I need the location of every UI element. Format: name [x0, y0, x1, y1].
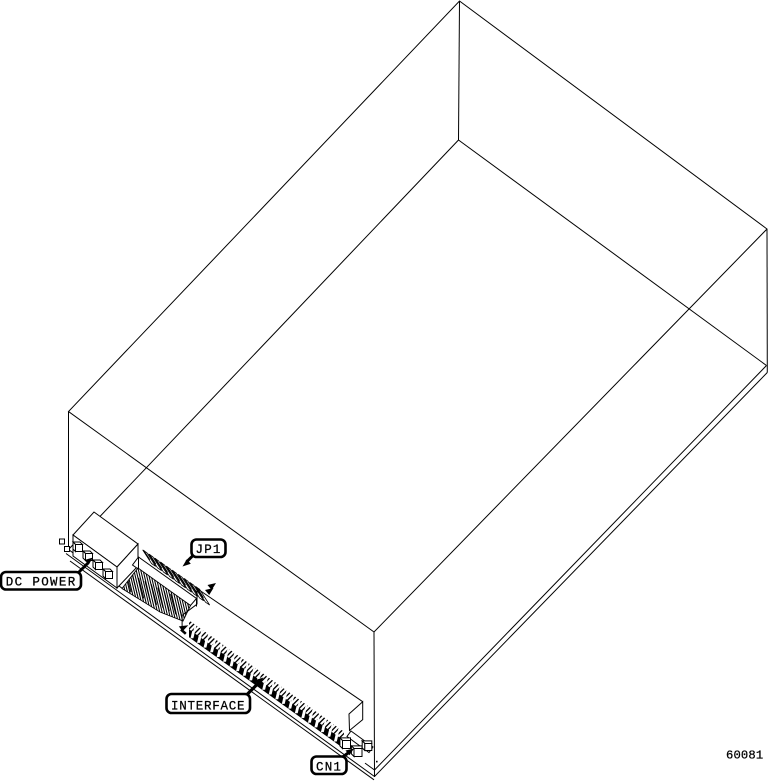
svg-text:JP1: JP1 [196, 543, 222, 557]
svg-text:INTERFACE: INTERFACE [171, 700, 245, 714]
svg-text:CN1: CN1 [316, 761, 342, 775]
svg-text:DC POWER: DC POWER [6, 576, 77, 590]
svg-text:60081: 60081 [726, 749, 763, 763]
